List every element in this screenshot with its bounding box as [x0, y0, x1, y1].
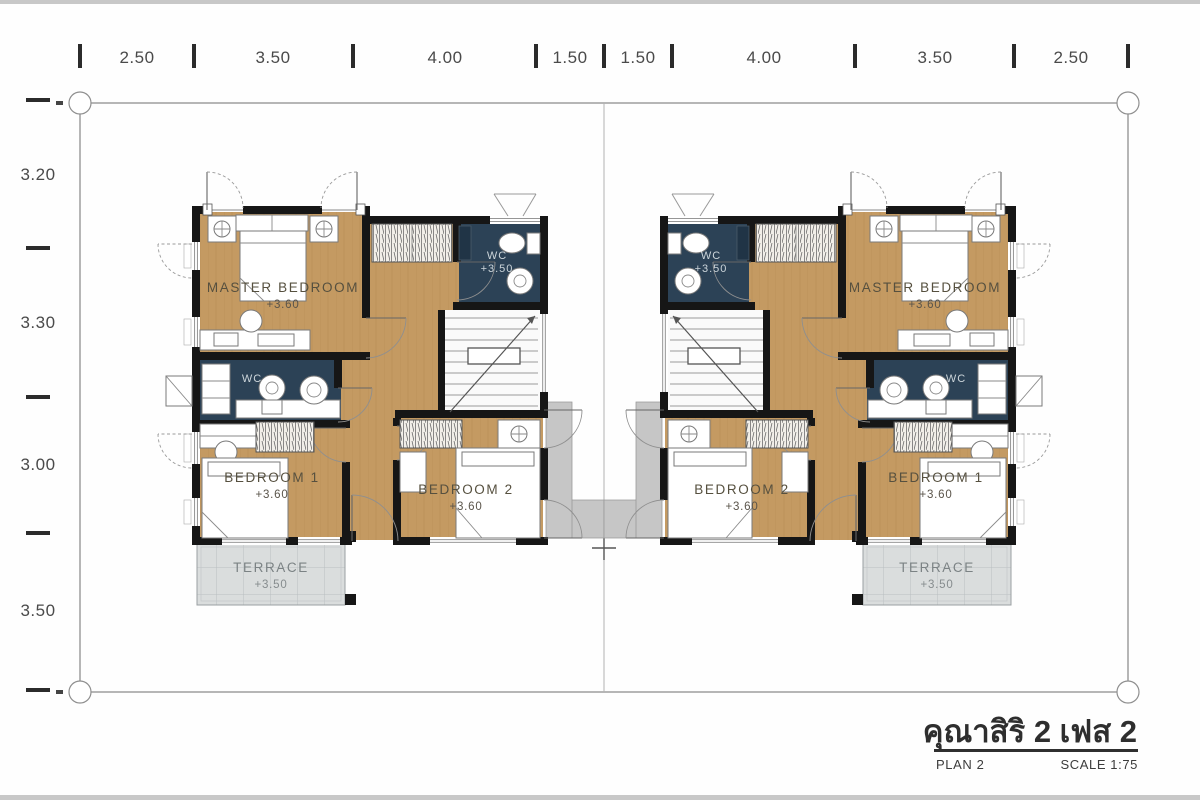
dimension-ticks-top	[78, 44, 1130, 68]
room-level-terrace-left: +3.50	[254, 579, 287, 591]
top-edge-strip	[0, 0, 1200, 4]
room-level-bedroom1-right: +3.60	[919, 489, 952, 501]
dim-top-6: 4.00	[746, 48, 781, 67]
dim-left-2: 3.30	[20, 313, 55, 332]
title-rule	[934, 749, 1138, 752]
dim-left-3: 3.00	[20, 455, 55, 474]
room-level-master-right: +3.60	[908, 299, 941, 311]
dim-top-7: 3.50	[917, 48, 952, 67]
bottom-edge-strip	[0, 795, 1200, 800]
dimension-row-top: 2.50 3.50 4.00 1.50 1.50 4.00 3.50 2.50	[78, 44, 1130, 68]
dim-left-1: 3.20	[20, 165, 55, 184]
room-label-wc-top-left: WC	[487, 250, 507, 262]
room-level-terrace-right: +3.50	[920, 579, 953, 591]
room-label-wc-mid-right: WC	[946, 373, 966, 385]
dim-left-4: 3.50	[20, 601, 55, 620]
room-label-master-right: MASTER BEDROOM	[849, 280, 1001, 295]
dim-top-8: 2.50	[1053, 48, 1088, 67]
project-title: คุณาสิริ 2 เฟส 2	[923, 714, 1137, 751]
room-level-wc-top-right: +3.50	[695, 263, 728, 275]
room-label-terrace-right: TERRACE	[899, 560, 975, 575]
dimension-column-left: 3.20 3.30 3.00 3.50	[20, 98, 55, 692]
room-label-bedroom2-left: BEDROOM 2	[418, 482, 513, 497]
room-label-wc-mid-left: WC	[242, 373, 262, 385]
room-level-wc-top-left: +3.50	[481, 263, 514, 275]
title-block: คุณาสิริ 2 เฟส 2 PLAN 2 SCALE 1:75	[923, 714, 1138, 772]
room-level-master-left: +3.60	[266, 299, 299, 311]
room-label-master-left: MASTER BEDROOM	[207, 280, 359, 295]
room-level-bedroom2-left: +3.60	[449, 501, 482, 513]
dim-top-1: 2.50	[119, 48, 154, 67]
room-label-bedroom1-right: BEDROOM 1	[888, 470, 983, 485]
room-label-wc-top-right: WC	[701, 250, 721, 262]
balcony-walkway	[546, 402, 604, 538]
floor-plan-canvas: 2.50 3.50 4.00 1.50 1.50 4.00 3.50 2.50 …	[0, 0, 1200, 800]
dim-top-2: 3.50	[255, 48, 290, 67]
dim-top-4: 1.50	[552, 48, 587, 67]
centerline-cross	[592, 536, 616, 560]
room-level-bedroom1-left: +3.60	[255, 489, 288, 501]
room-level-bedroom2-right: +3.60	[725, 501, 758, 513]
plan-number: PLAN 2	[936, 757, 984, 772]
unit-right	[604, 172, 1050, 605]
floor-plan-page: 2.50 3.50 4.00 1.50 1.50 4.00 3.50 2.50 …	[0, 0, 1200, 800]
dim-top-5: 1.50	[620, 48, 655, 67]
room-label-bedroom1-left: BEDROOM 1	[224, 470, 319, 485]
room-label-terrace-left: TERRACE	[233, 560, 309, 575]
room-label-bedroom2-right: BEDROOM 2	[694, 482, 789, 497]
plan-scale: SCALE 1:75	[1060, 757, 1138, 772]
dim-top-3: 4.00	[427, 48, 462, 67]
unit-left	[158, 172, 604, 605]
